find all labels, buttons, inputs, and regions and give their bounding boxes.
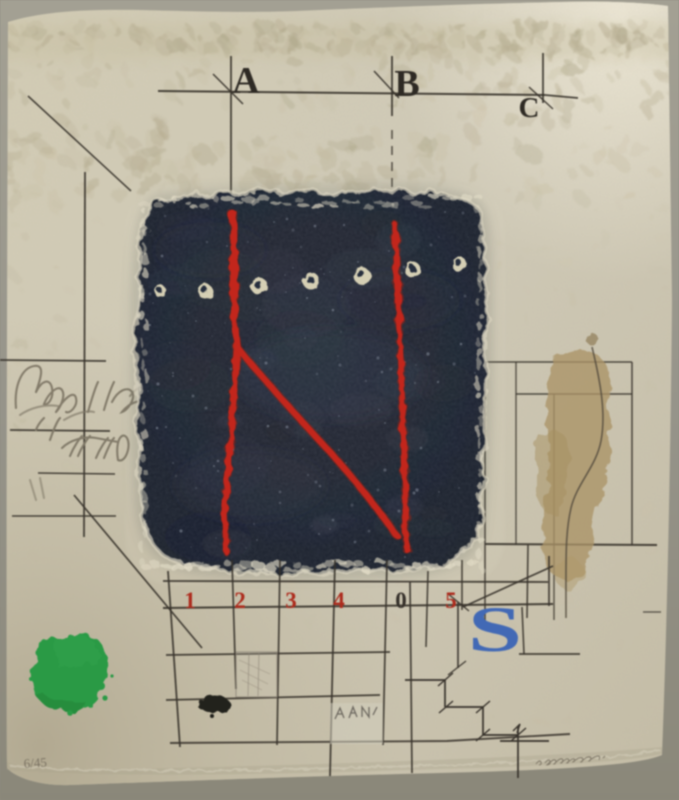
svg-text:5: 5 <box>445 588 457 613</box>
svg-text:3: 3 <box>285 588 297 613</box>
svg-text:S: S <box>468 593 522 665</box>
svg-text:6/45: 6/45 <box>23 754 47 771</box>
svg-text:C: C <box>519 92 540 124</box>
svg-text:1: 1 <box>184 588 196 613</box>
svg-text:B: B <box>394 63 419 105</box>
svg-text:4: 4 <box>333 588 345 613</box>
svg-text:A: A <box>232 60 260 102</box>
svg-text:2: 2 <box>234 588 246 613</box>
svg-text:0: 0 <box>395 588 407 613</box>
